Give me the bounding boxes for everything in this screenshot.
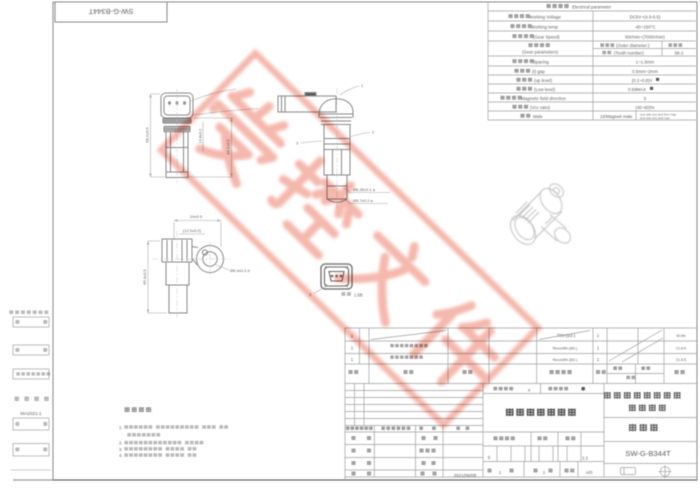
svg-text:Spacing: Spacing (533, 59, 549, 64)
svg-text:0.59MAX: 0.59MAX (628, 87, 646, 92)
svg-text:Working Voltage: Working Voltage (529, 14, 561, 19)
svg-text:24±0.5: 24±0.5 (190, 214, 203, 219)
svg-text:S: S (644, 96, 647, 101)
svg-text:Working temp: Working temp (531, 24, 559, 29)
svg-text:1.: 1. (119, 425, 123, 430)
svg-text:3: 3 (296, 142, 298, 146)
svg-text:2021/06/08: 2021/06/08 (454, 473, 477, 478)
svg-text:4.: 4. (119, 453, 123, 458)
svg-text:W.0th: W.0th (676, 334, 685, 338)
svg-text:Ø6.4±0.2 d: Ø6.4±0.2 d (230, 268, 250, 273)
svg-text:Recordfln-(B3-): Recordfln-(B3-) (553, 346, 578, 350)
svg-text:1.5B: 1.5B (354, 293, 363, 298)
svg-text:1: 1 (597, 345, 600, 350)
svg-text:DC5V~(4.5-5.5): DC5V~(4.5-5.5) (630, 14, 661, 19)
svg-text:(12.5±0.2): (12.5±0.2) (183, 228, 202, 233)
svg-text:3.: 3. (119, 447, 123, 452)
svg-text:(Vcc ratio): (Vcc ratio) (530, 105, 551, 110)
svg-text:0.5mm~2mm: 0.5mm~2mm (632, 69, 658, 74)
svg-text::: : (151, 409, 152, 415)
svg-text:SW-G-B344T: SW-G-B344T (625, 449, 671, 458)
svg-text:S: S (488, 455, 491, 460)
svg-text:(Outer diameter:): (Outer diameter:) (616, 43, 650, 48)
svg-text:1: 1 (361, 84, 363, 88)
svg-text:and new turn and man: and new turn and man (640, 116, 670, 120)
svg-text:Ø5.7±0.2 a: Ø5.7±0.2 a (353, 198, 374, 203)
svg-text:(Gear Speed): (Gear Speed) (533, 34, 560, 39)
svg-text:-40~150°C: -40~150°C (634, 24, 655, 29)
svg-text:1~1.5mm: 1~1.5mm (636, 59, 655, 64)
svg-text:Ø6.35±0.1 a: Ø6.35±0.1 a (353, 187, 376, 192)
svg-text:Recordfln-(B3-): Recordfln-(B3-) (553, 358, 578, 362)
svg-text:SW-G-B344T: SW-G-B344T (88, 7, 133, 16)
svg-text:(up level): (up level) (534, 78, 553, 83)
svg-text:58.2±0.5: 58.2±0.5 (145, 126, 150, 142)
svg-text:(t) gap: (t) gap (532, 69, 545, 74)
svg-text:21.8.5: 21.8.5 (676, 346, 686, 350)
svg-text:14.8±0.2: 14.8±0.2 (199, 129, 203, 144)
svg-text:15/Magneti male: 15/Magneti male (600, 114, 633, 119)
svg-text:(Gear parameters): (Gear parameters) (522, 49, 559, 54)
svg-text:1: 1 (597, 357, 600, 362)
svg-text:(Low level): (Low level) (534, 87, 556, 92)
svg-text:1: 1 (597, 333, 600, 338)
svg-text:58-2: 58-2 (675, 50, 684, 55)
svg-text:2: 2 (372, 131, 374, 135)
svg-text:1: 1 (499, 470, 502, 475)
svg-text:(0.2~0.8)V: (0.2~0.8)V (632, 78, 653, 83)
svg-text:A/0: A/0 (586, 470, 593, 475)
svg-text:Magnetic field direction: Magnetic field direction (521, 96, 566, 101)
svg-text:1: 1 (543, 470, 546, 475)
svg-text:(40~60)%: (40~60)% (635, 105, 654, 110)
svg-text:(Tooth number): (Tooth number) (614, 50, 644, 55)
svg-text:2.: 2. (119, 441, 123, 446)
svg-text:1: 1 (351, 357, 354, 362)
svg-text:1:1: 1:1 (582, 456, 589, 461)
svg-text:65.4±0.5: 65.4±0.5 (142, 268, 147, 284)
svg-text:Electrical parameter: Electrical parameter (572, 5, 612, 10)
svg-text:x: x (528, 388, 531, 393)
svg-text:1: 1 (351, 346, 354, 351)
svg-text:MA2021-1: MA2021-1 (20, 411, 42, 416)
svg-text:Male: Male (533, 114, 543, 119)
svg-text:21.8.5: 21.8.5 (676, 358, 686, 362)
svg-text:50r/min~(7000r/min): 50r/min~(7000r/min) (625, 34, 665, 39)
